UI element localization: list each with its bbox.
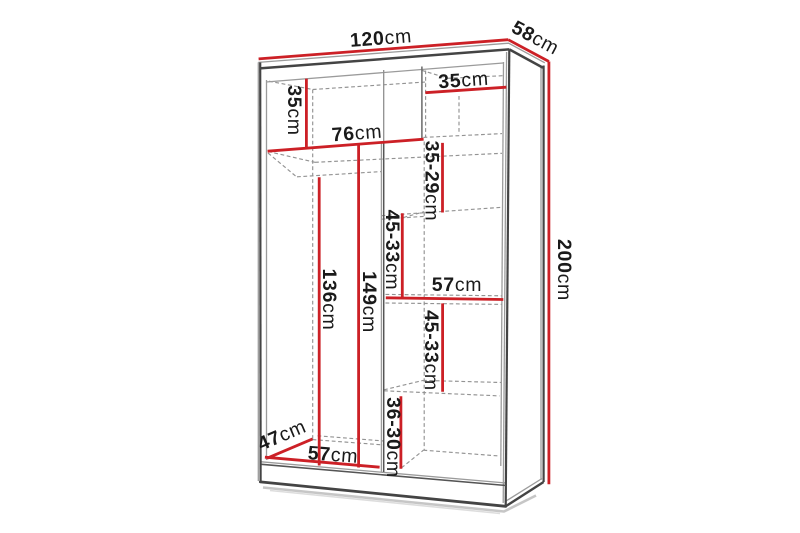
- svg-text:149cm: 149cm: [358, 271, 380, 333]
- svg-text:35-29cm: 35-29cm: [421, 141, 443, 222]
- svg-text:35cm: 35cm: [438, 68, 490, 93]
- svg-text:45-33cm: 45-33cm: [381, 210, 403, 291]
- svg-text:136cm: 136cm: [318, 268, 340, 330]
- svg-text:200cm: 200cm: [553, 239, 575, 301]
- svg-text:36-30cm: 36-30cm: [382, 397, 404, 478]
- svg-text:35cm: 35cm: [283, 85, 305, 136]
- svg-text:57cm: 57cm: [307, 442, 359, 468]
- svg-text:76cm: 76cm: [331, 121, 383, 147]
- svg-text:57cm: 57cm: [432, 274, 483, 296]
- svg-text:45-33cm: 45-33cm: [420, 310, 442, 391]
